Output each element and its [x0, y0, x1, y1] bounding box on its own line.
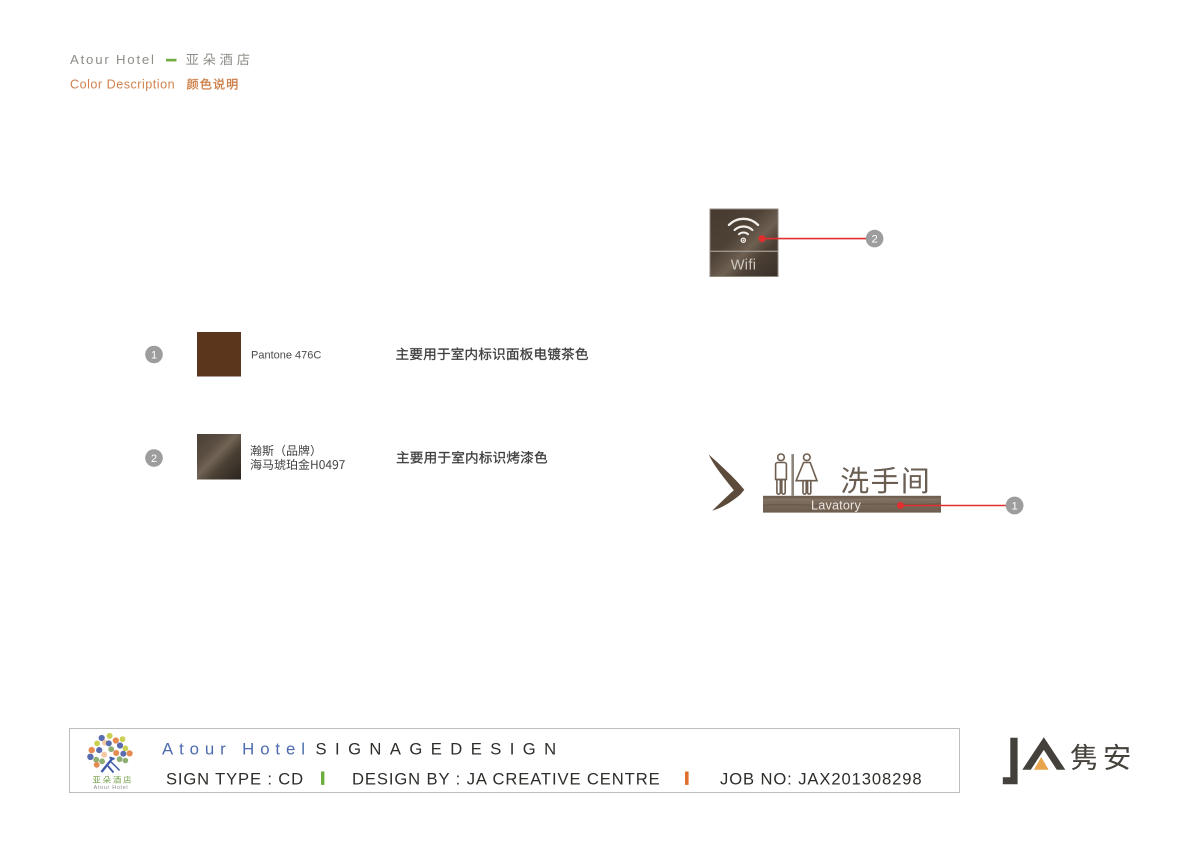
- svg-text:DESIGN BY : JA CREATIVE CENTRE: DESIGN BY : JA CREATIVE CENTRE: [352, 769, 661, 788]
- svg-text:Atour Hotel: Atour Hotel: [94, 785, 129, 791]
- svg-text:Atour Hotel: Atour Hotel: [70, 52, 156, 67]
- svg-text:SIGN TYPE : CD: SIGN TYPE : CD: [166, 769, 304, 788]
- svg-text:SIGNAGEDESIGN: SIGNAGEDESIGN: [316, 740, 565, 759]
- svg-text:JOB NO: JAX201308298: JOB NO: JAX201308298: [720, 769, 922, 788]
- svg-text:1: 1: [1011, 500, 1017, 512]
- svg-text:Wifi: Wifi: [731, 257, 757, 273]
- svg-text:Lavatory: Lavatory: [811, 498, 861, 512]
- svg-text:Pantone 476C: Pantone 476C: [251, 349, 321, 361]
- svg-text:2: 2: [871, 234, 877, 246]
- svg-text:Color Description: Color Description: [70, 78, 175, 92]
- svg-text:1: 1: [151, 349, 157, 361]
- svg-text:2: 2: [151, 453, 157, 465]
- svg-text:Atour Hotel: Atour Hotel: [162, 740, 311, 759]
